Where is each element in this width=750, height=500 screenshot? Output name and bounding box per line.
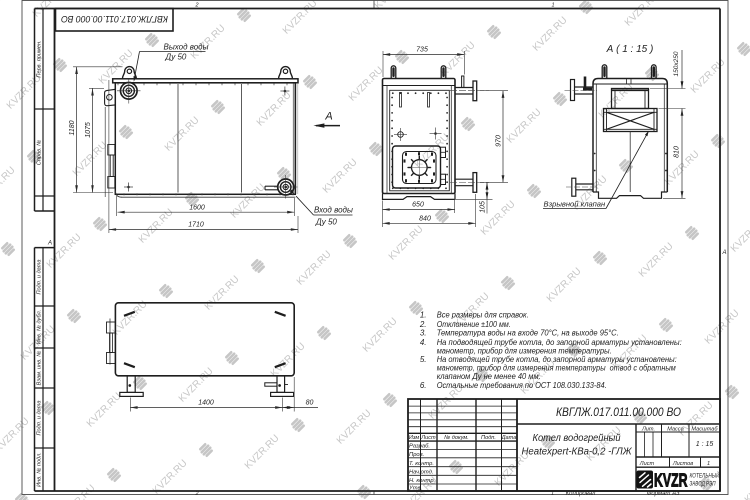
svg-text:Подп. и дата: Подп. и дата [37, 259, 43, 294]
svg-text:650: 650 [412, 202, 424, 209]
svg-text:840: 840 [419, 215, 431, 222]
svg-text:Ду 50: Ду 50 [165, 53, 187, 62]
svg-text:970: 970 [495, 135, 502, 147]
svg-text:клапаном Ду не менее 40 мм.: клапаном Ду не менее 40 мм. [437, 372, 541, 381]
svg-text:810: 810 [674, 146, 681, 158]
svg-text:А ( 1 : 15 ): А ( 1 : 15 ) [606, 44, 654, 55]
svg-text:Утв.: Утв. [408, 485, 422, 491]
svg-text:Пров.: Пров. [409, 452, 424, 458]
svg-text:Взрывной клапан: Взрывной клапан [544, 200, 607, 209]
svg-text:1: 1 [707, 461, 710, 467]
svg-text:105: 105 [480, 201, 487, 213]
svg-text:Перв. примен.: Перв. примен. [37, 40, 43, 77]
svg-text:КВГЛЖ.017.011.00.000 ВО: КВГЛЖ.017.011.00.000 ВО [556, 407, 681, 419]
svg-text:Справ. №: Справ. № [37, 140, 43, 165]
svg-text:Т. контр.: Т. контр. [409, 461, 434, 467]
svg-text:1075: 1075 [85, 122, 92, 138]
svg-text:Heatexpert-КВа-0,2 -ГЛЖ: Heatexpert-КВа-0,2 -ГЛЖ [522, 447, 633, 458]
svg-text:3.: 3. [420, 328, 427, 337]
svg-text:735: 735 [416, 47, 428, 54]
svg-text:Дата: Дата [501, 435, 517, 441]
svg-text:Н. контр.: Н. контр. [409, 478, 435, 484]
svg-text:1.: 1. [420, 311, 427, 320]
svg-text:№ докум.: № докум. [444, 435, 469, 441]
svg-text:Подп. и дата: Подп. и дата [37, 400, 43, 435]
svg-text:1710: 1710 [188, 222, 204, 229]
svg-text:На подводящей трубе котла, до: На подводящей трубе котла, до запорной а… [437, 338, 682, 347]
svg-text:А: А [47, 241, 52, 247]
svg-text:KVZR: KVZR [654, 471, 688, 491]
svg-text:Разраб.: Разраб. [409, 444, 430, 450]
svg-text:Изм: Изм [409, 435, 420, 441]
svg-text:Инв. № подл.: Инв. № подл. [37, 452, 43, 487]
svg-text:1600: 1600 [189, 204, 205, 211]
svg-text:Лист: Лист [420, 435, 436, 441]
svg-text:На отводящей трубе котла, до з: На отводящей трубе котла, до запорной ар… [437, 355, 677, 364]
svg-text:ЗАВОД РЭП: ЗАВОД РЭП [690, 482, 716, 488]
svg-text:Масштаб: Масштаб [691, 426, 718, 432]
svg-text:А: А [324, 110, 332, 122]
svg-text:150х250: 150х250 [673, 51, 680, 76]
svg-text:КОТЕЛЬНЫЙ: КОТЕЛЬНЫЙ [690, 472, 721, 480]
svg-text:6.: 6. [420, 381, 427, 390]
svg-text:80: 80 [306, 400, 314, 407]
svg-text:Нач.отд.: Нач.отд. [409, 469, 433, 475]
svg-text:Выход воды: Выход воды [164, 43, 209, 52]
svg-text:4.: 4. [420, 338, 427, 347]
svg-text:Остальные требования по ОСТ 10: Остальные требования по ОСТ 108.030.133-… [437, 381, 607, 390]
svg-text:Ду 50: Ду 50 [315, 218, 337, 227]
svg-text:Лит.: Лит. [641, 426, 655, 432]
svg-text:Листов: Листов [672, 461, 693, 467]
svg-text:Взам. инв. №: Взам. инв. № [37, 351, 43, 386]
svg-text:1400: 1400 [198, 400, 214, 407]
svg-text:Масса: Масса [667, 426, 684, 432]
svg-text:Подп.: Подп. [481, 435, 496, 441]
svg-text:Все размеры для справок.: Все размеры для справок. [437, 311, 529, 320]
svg-text:Котел водогрейный: Котел водогрейный [533, 433, 621, 444]
svg-text:1180: 1180 [69, 120, 76, 135]
svg-text:Вход воды: Вход воды [314, 206, 353, 215]
svg-text:Температура воды на входе 70°С: Температура воды на входе 70°С, на выход… [437, 328, 619, 337]
svg-text:КВГЛЖ.017.011.00.000 ВО: КВГЛЖ.017.011.00.000 ВО [61, 14, 168, 24]
svg-text:Инв. № дубл.: Инв. № дубл. [37, 310, 43, 344]
svg-text:Лист: Лист [639, 461, 655, 467]
svg-text:1 : 15: 1 : 15 [696, 441, 714, 448]
svg-text:А: А [721, 250, 726, 256]
svg-text:5.: 5. [420, 355, 427, 364]
